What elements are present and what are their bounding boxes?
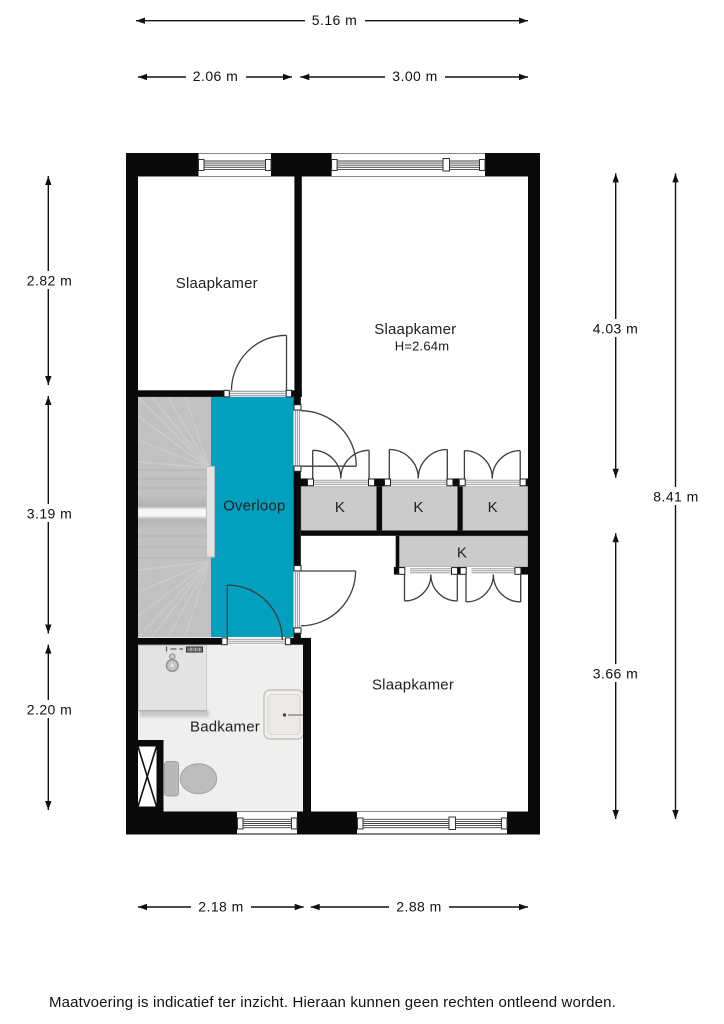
svg-text:2.20 m: 2.20 m (27, 702, 73, 718)
svg-text:Slaapkamer: Slaapkamer (372, 677, 454, 694)
svg-text:K: K (457, 545, 467, 562)
svg-text:K: K (335, 499, 345, 516)
svg-text:Slaapkamer: Slaapkamer (374, 321, 456, 338)
svg-text:Badkamer: Badkamer (190, 719, 260, 736)
svg-text:H=2.64m: H=2.64m (395, 338, 450, 353)
svg-text:2.18 m: 2.18 m (198, 899, 244, 915)
svg-text:Slaapkamer: Slaapkamer (176, 275, 258, 292)
svg-text:5.16 m: 5.16 m (312, 12, 358, 28)
svg-text:K: K (488, 499, 498, 516)
svg-text:Maatvoering is indicatief ter: Maatvoering is indicatief ter inzicht. H… (49, 994, 616, 1011)
svg-text:Overloop: Overloop (223, 498, 285, 515)
svg-text:2.88 m: 2.88 m (396, 899, 442, 915)
svg-text:3.66 m: 3.66 m (593, 666, 639, 682)
svg-text:3.19 m: 3.19 m (27, 506, 73, 522)
svg-text:3.00 m: 3.00 m (392, 68, 438, 84)
svg-text:2.82 m: 2.82 m (27, 273, 73, 289)
svg-text:4.03 m: 4.03 m (593, 321, 639, 337)
svg-text:2.06 m: 2.06 m (193, 68, 239, 84)
svg-text:8.41 m: 8.41 m (653, 489, 699, 505)
svg-text:K: K (413, 499, 423, 516)
